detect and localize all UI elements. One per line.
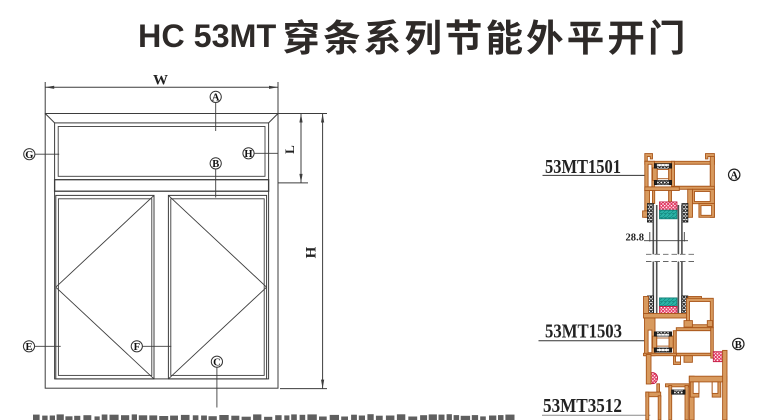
svg-text:G: G bbox=[25, 150, 33, 161]
svg-text:L: L bbox=[282, 145, 297, 154]
svg-text:C: C bbox=[213, 357, 221, 368]
svg-text:A: A bbox=[730, 171, 738, 182]
svg-text:B: B bbox=[735, 340, 742, 351]
svg-text:53MT3512: 53MT3512 bbox=[543, 395, 622, 417]
svg-text:53MT1503: 53MT1503 bbox=[545, 321, 622, 343]
svg-text:HC 53MT: HC 53MT bbox=[138, 18, 276, 54]
svg-text:W: W bbox=[153, 73, 168, 89]
svg-text:B: B bbox=[212, 159, 219, 170]
svg-text:A: A bbox=[212, 93, 220, 104]
svg-text:H: H bbox=[244, 149, 252, 160]
svg-text:F: F bbox=[134, 342, 140, 353]
svg-text:E: E bbox=[25, 342, 32, 353]
svg-text:H: H bbox=[304, 246, 320, 258]
svg-text:28.8: 28.8 bbox=[626, 231, 645, 243]
